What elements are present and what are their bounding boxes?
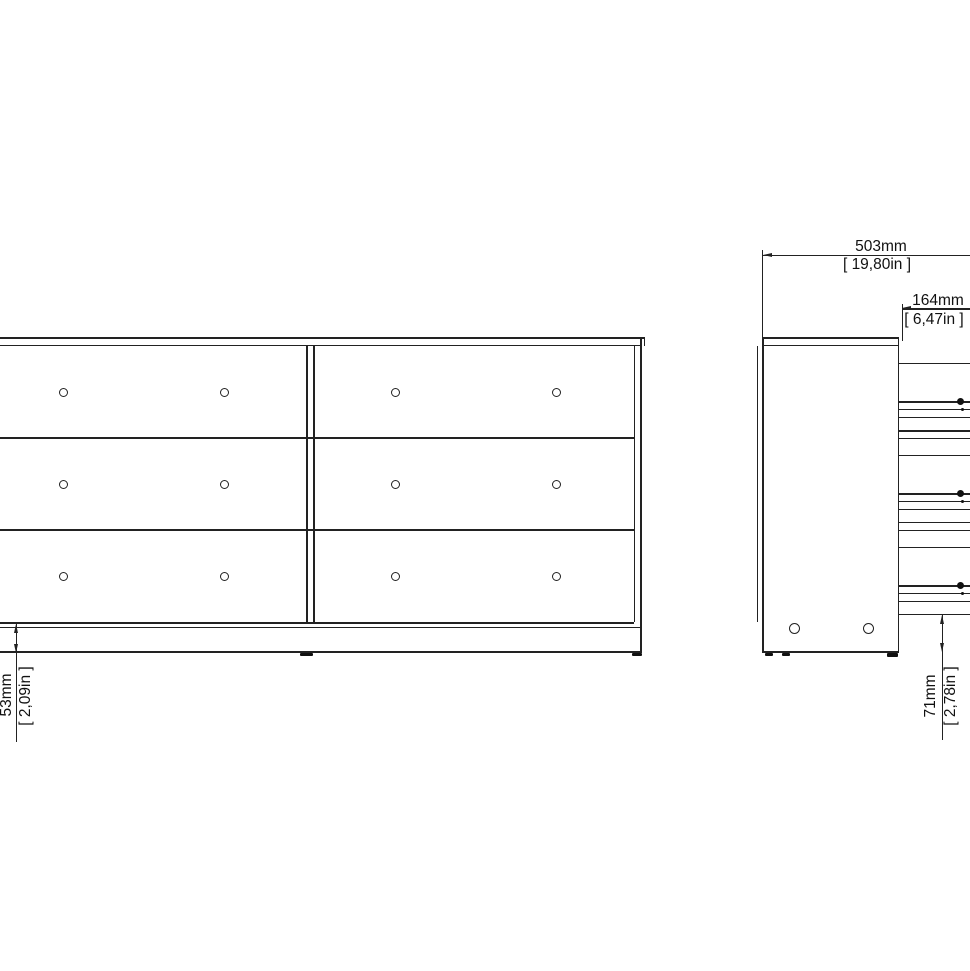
drawer-height-dimension-mm-label: 164mm <box>898 293 970 309</box>
drawer-knob <box>391 572 400 581</box>
front-bottom-rail-edge <box>0 627 640 628</box>
side-foot <box>765 653 773 657</box>
screw-pilot-dot <box>961 500 964 503</box>
front-row-divider-line <box>0 529 634 531</box>
front-center-divider-line <box>313 346 315 623</box>
side-foot <box>782 653 790 657</box>
drawer-profile-line <box>899 509 970 510</box>
side-drawer-front-strip <box>757 346 758 623</box>
drawer-profile-line <box>899 530 970 532</box>
screw-pilot-dot <box>961 408 964 411</box>
screw-head-dot <box>957 582 964 589</box>
front-top-inner-edge <box>0 345 640 346</box>
drawer-height-dimension-inch-label: [ 6,47in ] <box>891 312 970 328</box>
side-cam-hole <box>863 623 874 634</box>
side-foot <box>887 653 898 657</box>
drawer-knob <box>59 388 68 397</box>
front-row-divider-line <box>0 437 634 439</box>
depth-dimension-inch-label: [ 19,80in ] <box>832 257 922 273</box>
front-foot <box>632 653 642 657</box>
front-right-outer-edge <box>640 338 642 652</box>
front-center-divider-line <box>306 346 308 623</box>
depth-dim-arrow <box>763 253 772 257</box>
drawer-profile-line <box>899 430 970 432</box>
side-clearance-arrow-down <box>940 643 944 652</box>
drawer-profile-line <box>899 501 970 502</box>
side-top-inner-edge <box>762 345 899 346</box>
side-clearance-dimension-mm-label: 71mm <box>923 666 939 726</box>
front-drawer-bottom-edge <box>0 622 634 624</box>
front-foot <box>300 653 313 657</box>
side-top-edge <box>762 337 899 339</box>
screw-head-dot <box>957 398 964 405</box>
screw-pilot-dot <box>961 592 964 595</box>
front-right-inner-edge <box>634 346 636 623</box>
depth-dimension-mm-label: 503mm <box>841 239 921 255</box>
drawer-knob <box>220 480 229 489</box>
screw-head-dot <box>957 490 964 497</box>
drawer-profile-line <box>899 417 970 418</box>
front-clearance-arrow-up <box>14 624 18 633</box>
drawer-profile-line <box>899 614 970 616</box>
side-clearance-arrow-up <box>940 615 944 624</box>
front-clearance-dimension-mm-label: 53mm <box>0 665 15 725</box>
side-cam-hole <box>789 623 800 634</box>
drawer-profile-line <box>899 363 970 364</box>
depth-ext-line <box>762 250 763 337</box>
front-top-right-cap <box>644 337 645 346</box>
front-clearance-dimension-inch-label: [ 2,09in ] <box>18 661 34 731</box>
furniture-dimension-drawing: 503mm [ 19,80in ] 164mm [ 6,47in ] 53mm … <box>0 0 970 971</box>
drawer-knob <box>552 572 561 581</box>
drawer-knob <box>220 388 229 397</box>
drawer-knob <box>220 572 229 581</box>
drawer-profile-line <box>899 438 970 440</box>
side-clearance-dimension-inch-label: [ 2,78in ] <box>943 661 959 731</box>
drawer-profile-line <box>899 593 970 594</box>
drawer-knob <box>59 480 68 489</box>
drawer-profile-line <box>899 522 970 524</box>
front-floor-edge <box>0 651 642 653</box>
drawer-knob <box>59 572 68 581</box>
drawer-profile-line <box>899 547 970 548</box>
front-top-edge <box>0 337 645 339</box>
drawer-knob <box>391 480 400 489</box>
side-front-edge <box>762 337 764 652</box>
drawer-profile-line <box>899 409 970 410</box>
drawer-profile-line <box>899 455 970 456</box>
drawer-knob <box>552 480 561 489</box>
side-back-edge <box>898 346 900 653</box>
drawer-profile-line <box>899 601 970 602</box>
drawer-knob <box>391 388 400 397</box>
drawer-knob <box>552 388 561 397</box>
front-clearance-arrow-down <box>14 644 18 653</box>
